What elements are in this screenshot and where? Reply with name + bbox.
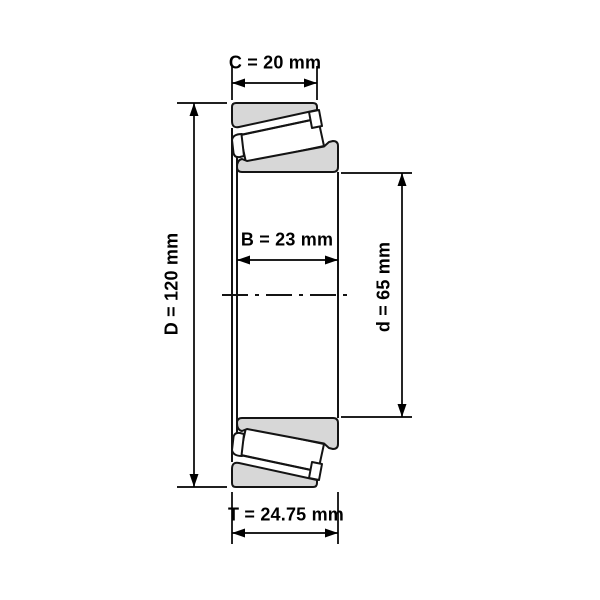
t-arrow-left xyxy=(232,529,245,538)
c-arrow-left xyxy=(232,79,245,88)
dimension-label-d: d = 65 mm xyxy=(374,242,395,332)
dimension-label-C: C = 20 mm xyxy=(229,53,321,74)
dimension-label-T: T = 24.75 mm xyxy=(228,505,344,526)
d-bore-arrow-top xyxy=(398,173,407,186)
t-arrow-right xyxy=(325,529,338,538)
d-bore-arrow-bottom xyxy=(398,404,407,417)
b-arrow-right xyxy=(325,256,338,265)
c-arrow-right xyxy=(304,79,317,88)
b-arrow-left xyxy=(237,256,250,265)
bearing-dimension-drawing: C = 20 mm B = 23 mm T = 24.75 mm D = 120… xyxy=(0,0,600,600)
d-outer-arrow-top xyxy=(190,103,199,116)
dimension-label-D: D = 120 mm xyxy=(162,233,183,336)
bearing-half-bottom xyxy=(232,418,338,487)
d-outer-arrow-bottom xyxy=(190,474,199,487)
dimension-label-B: B = 23 mm xyxy=(241,230,333,251)
bearing-half-top xyxy=(232,103,338,172)
